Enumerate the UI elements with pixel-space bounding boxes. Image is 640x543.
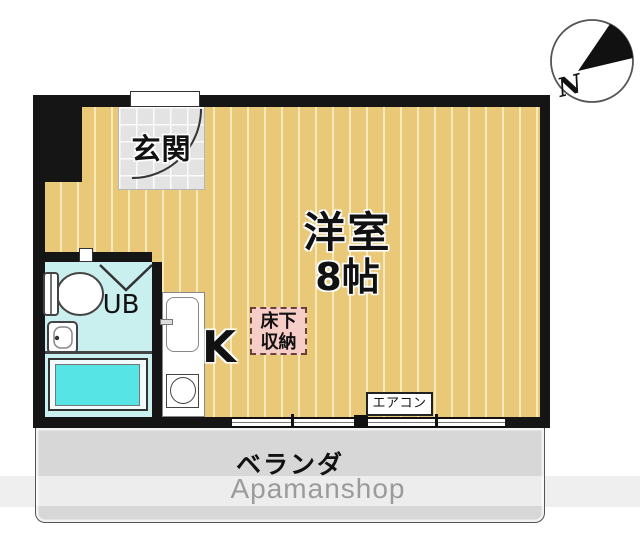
entrance-label: 玄関 bbox=[118, 126, 205, 168]
floor-storage-line1: 床下 bbox=[252, 311, 305, 332]
air-conditioner-label: エアコン bbox=[366, 392, 433, 416]
corner-wall-block bbox=[45, 107, 82, 182]
bath-partition-line bbox=[45, 351, 152, 354]
watermark-text: Apamanshop bbox=[64, 473, 545, 505]
wall-post bbox=[354, 415, 368, 428]
room-name: 洋室 bbox=[250, 210, 445, 256]
sliding-window bbox=[232, 417, 505, 428]
main-room-label: 洋室 8帖 bbox=[250, 210, 445, 298]
veranda-area: ベランダ Apamanshop bbox=[35, 428, 545, 523]
bath-door-opening bbox=[79, 248, 93, 262]
kitchen-label: K bbox=[202, 322, 236, 373]
floor-storage-box: 床下 収納 bbox=[250, 307, 307, 355]
bathtub-water bbox=[55, 364, 140, 406]
unit-bath-label: UB bbox=[92, 290, 150, 320]
floor-plan: 玄関 UB K 洋室 8帖 床下 収納 エアコン ベ bbox=[0, 0, 640, 543]
burner-icon bbox=[170, 377, 196, 404]
compass-icon: N bbox=[548, 17, 636, 105]
entrance-door-opening bbox=[130, 91, 200, 107]
floor-storage-line2: 収納 bbox=[252, 332, 305, 353]
bath-wall bbox=[45, 252, 152, 262]
room-size: 8帖 bbox=[250, 256, 445, 298]
faucet-icon bbox=[160, 319, 173, 325]
